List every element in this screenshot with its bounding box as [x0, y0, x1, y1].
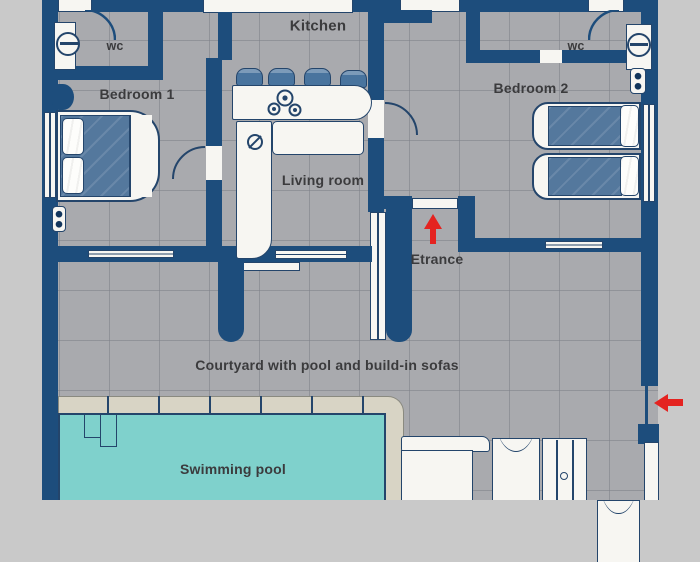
wc-right-door2 — [540, 50, 562, 63]
wall-courtyard-stub — [218, 250, 244, 342]
bed-twin-2-mattress — [548, 157, 622, 196]
bedroom1-window-west — [44, 112, 56, 198]
radiator-icon — [52, 206, 66, 232]
builtin-sofa-seat — [401, 450, 473, 500]
bedroom1-label: Bedroom 1 — [100, 86, 175, 102]
table-plank-line — [572, 440, 574, 500]
entrance-door — [412, 198, 458, 209]
gate-nub — [641, 378, 652, 385]
toilet-left-handle — [60, 42, 78, 45]
wall-kitchen-stub — [218, 12, 232, 60]
living-window-south — [275, 250, 347, 259]
toilet-right-handle — [630, 43, 648, 46]
pool-deck-joints — [58, 396, 404, 413]
wc-left-label: wc — [106, 39, 123, 53]
bed-twin-1-mattress — [548, 106, 622, 146]
sink-icon — [245, 132, 265, 152]
bar-chair — [268, 68, 295, 86]
wall-entrance-left — [386, 209, 412, 342]
living-room-label: Living room — [282, 172, 364, 188]
wc-right-label: wc — [567, 39, 584, 53]
swimming-pool-label: Swimming pool — [180, 461, 286, 477]
living-threshold — [236, 262, 300, 271]
table-knot — [560, 472, 568, 480]
pillow — [62, 118, 84, 155]
gate-leaf — [645, 384, 648, 426]
stove-icon — [262, 88, 308, 118]
builtin-sofa — [492, 438, 540, 500]
builtin-sofa — [597, 500, 640, 562]
courtyard-label: Courtyard with pool and build-in sofas — [195, 357, 458, 373]
gate-arrow-left-icon — [654, 394, 684, 412]
basin-icon — [52, 84, 74, 110]
pillow — [620, 156, 639, 196]
floor-plan: Kitchen wc wc Bedroom 1 Bedroom 2 Living… — [0, 0, 700, 500]
entrance-label: Etrance — [411, 251, 464, 267]
bedroom2-door-arc-icon — [384, 102, 418, 136]
bedroom1-window-south — [88, 250, 174, 258]
bed-double-fold — [130, 115, 152, 197]
wc-right-door-arc-icon — [588, 10, 620, 42]
bedroom1-door-arc-icon — [172, 146, 206, 180]
builtin-sofa-arm — [644, 442, 659, 500]
wc-left-door-arc-icon — [84, 10, 116, 42]
bedroom1-door — [206, 146, 222, 180]
wall-wc-left-right — [148, 12, 163, 78]
pillow — [620, 105, 639, 147]
wall-entrance-top-left — [384, 196, 412, 209]
bar-chair — [236, 68, 263, 86]
pool-steps — [84, 413, 101, 438]
bedroom2-window-east — [643, 104, 655, 202]
entrance-arrow-up-icon — [424, 214, 442, 246]
radiator-icon — [630, 68, 646, 94]
pillow — [62, 157, 84, 194]
bedroom2-label: Bedroom 2 — [494, 80, 569, 96]
wall-bedroom2-nook — [384, 10, 432, 23]
sofa-living — [272, 121, 364, 155]
wall-entrance-right — [458, 196, 475, 252]
bar-chair — [304, 68, 331, 86]
wall-gate-block — [638, 424, 659, 444]
bedroom2-window — [545, 241, 603, 249]
pool-steps — [100, 413, 117, 447]
living-glass-panel — [370, 212, 386, 340]
table-plank-line — [556, 440, 558, 500]
kitchen-label: Kitchen — [290, 18, 346, 35]
outdoor-table — [542, 438, 587, 500]
